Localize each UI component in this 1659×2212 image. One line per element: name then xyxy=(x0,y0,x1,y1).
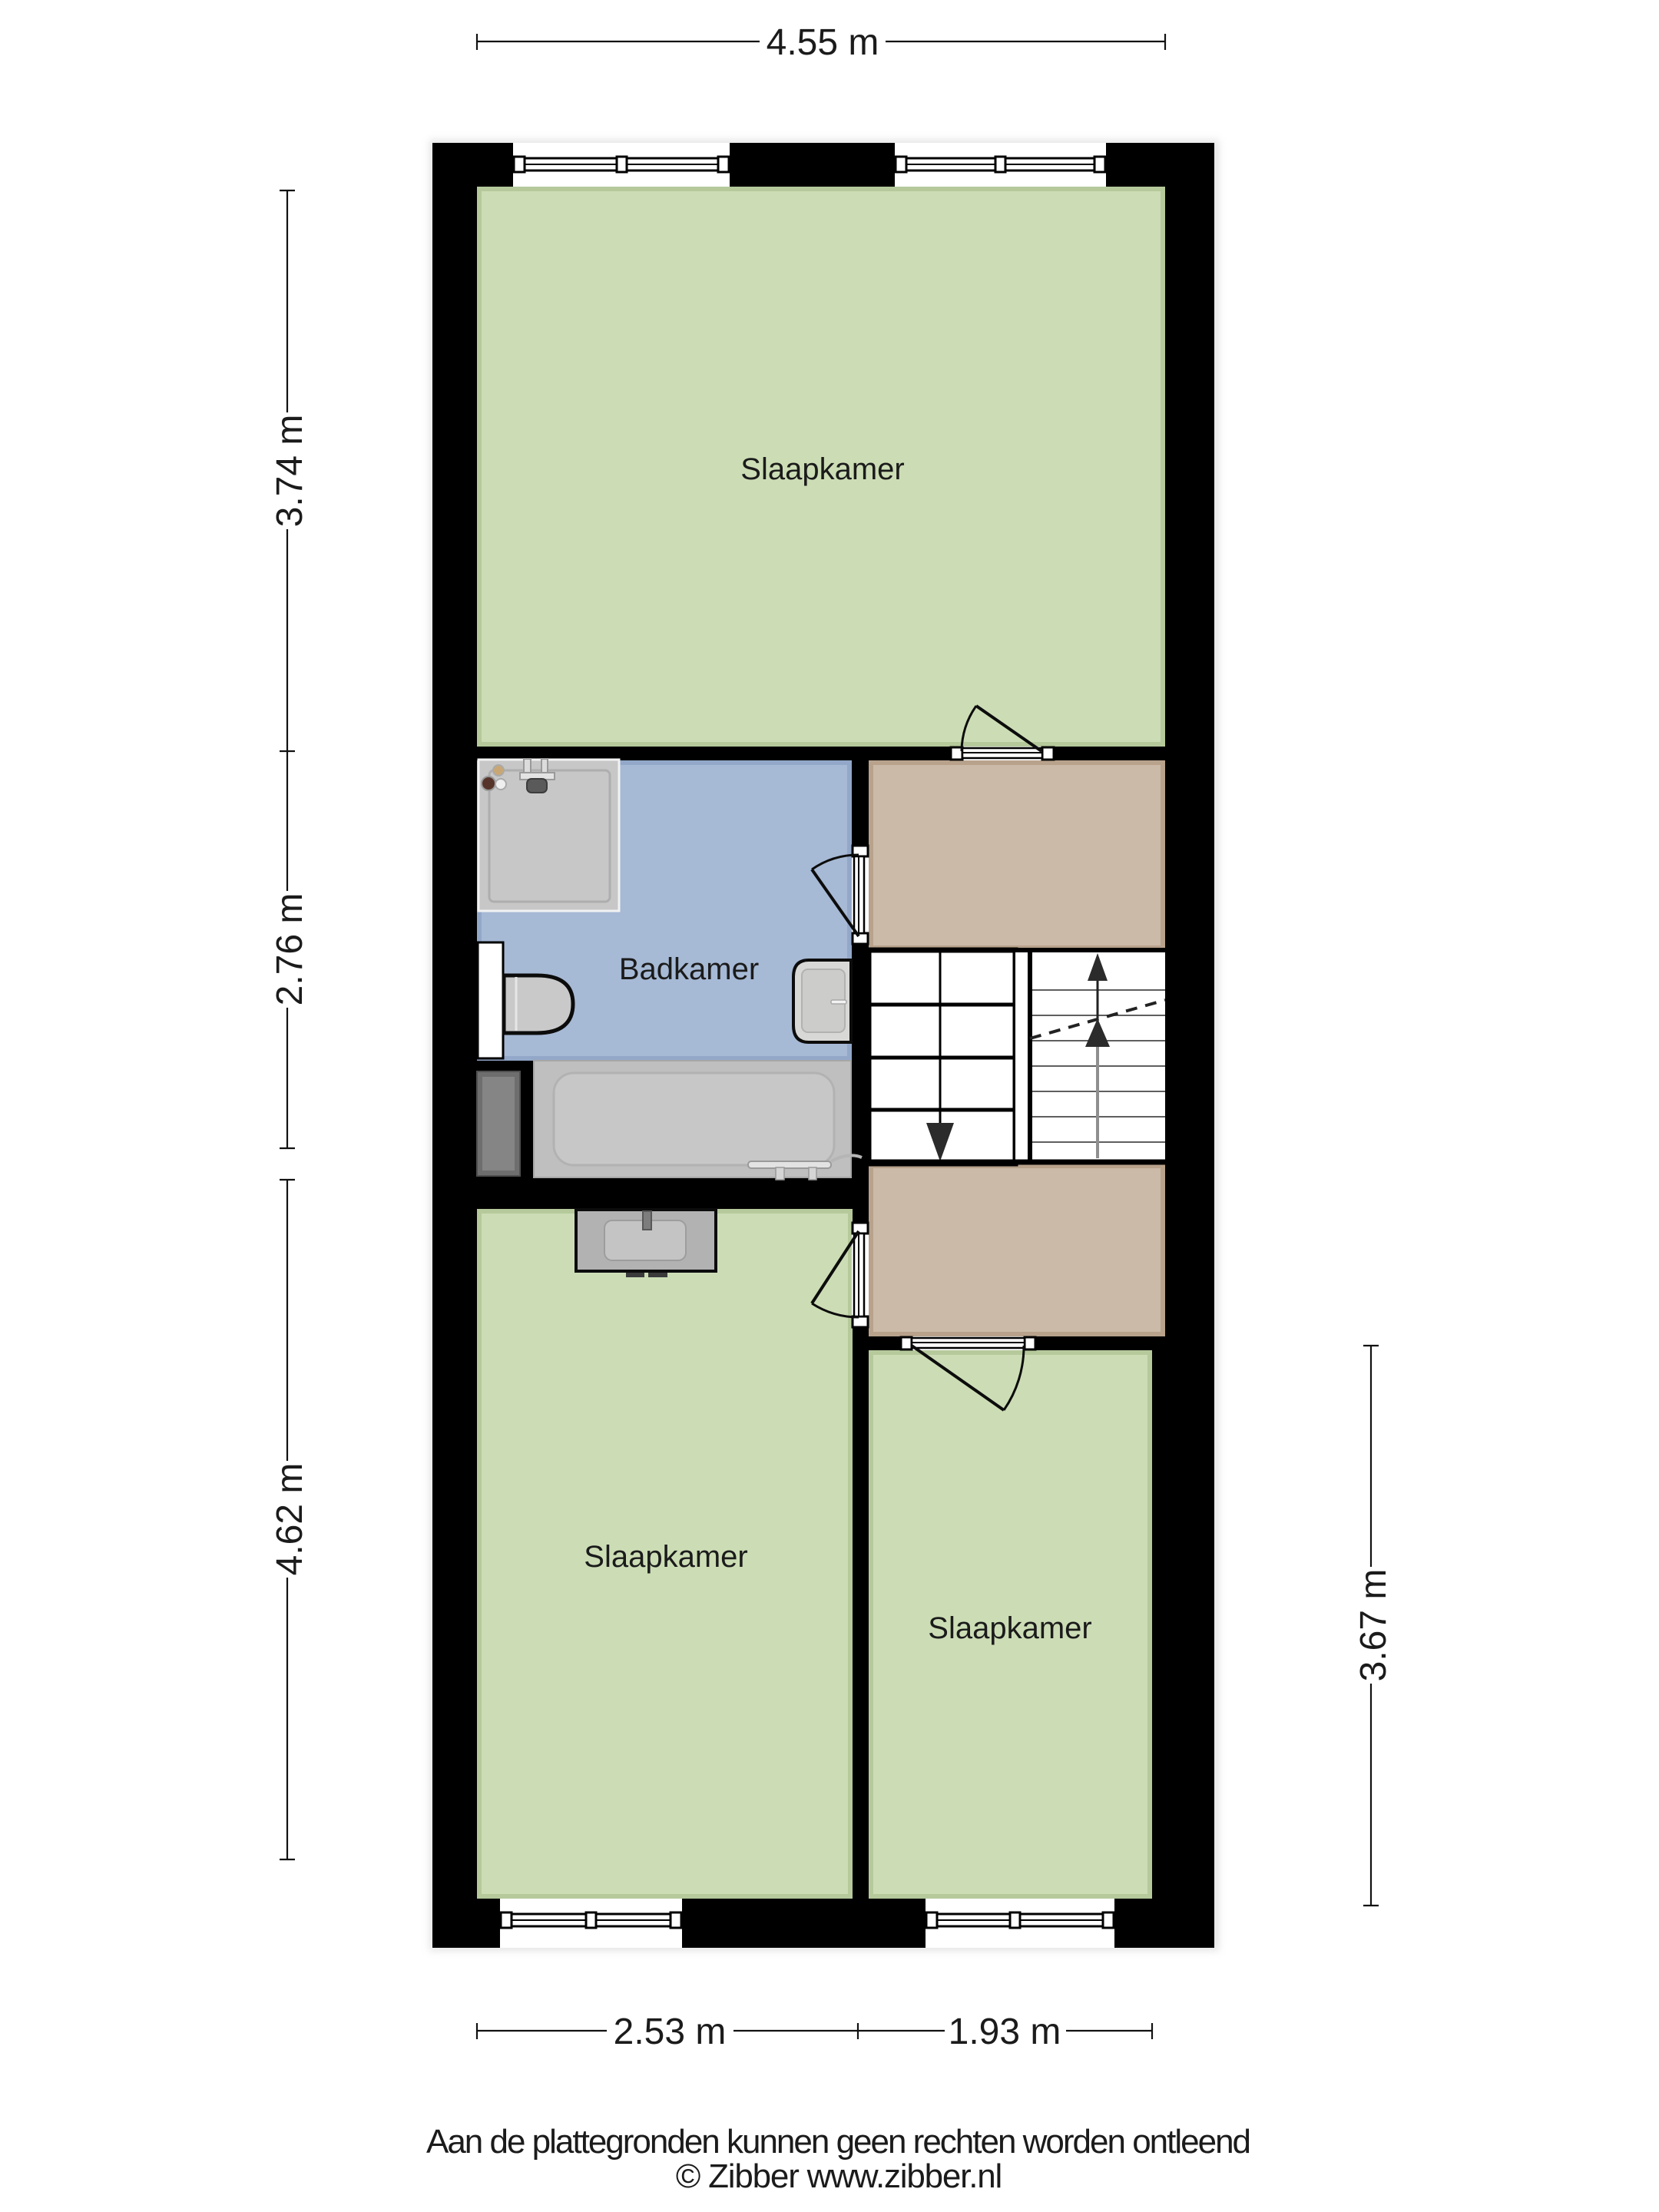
svg-text:Slaapkamer: Slaapkamer xyxy=(740,452,904,486)
svg-text:4.62 m: 4.62 m xyxy=(270,1463,310,1576)
svg-text:Badkamer: Badkamer xyxy=(619,952,759,986)
svg-text:2.76 m: 2.76 m xyxy=(270,893,310,1006)
svg-text:© Zibber www.zibber.nl: © Zibber www.zibber.nl xyxy=(676,2157,1002,2195)
svg-text:1.93 m: 1.93 m xyxy=(949,2012,1061,2052)
svg-text:3.67 m: 3.67 m xyxy=(1353,1569,1394,1682)
svg-text:3.74 m: 3.74 m xyxy=(270,415,310,528)
svg-text:Aan de plattegronden kunnen ge: Aan de plattegronden kunnen geen rechten… xyxy=(426,2123,1250,2161)
svg-text:Slaapkamer: Slaapkamer xyxy=(584,1540,747,1574)
svg-text:2.53 m: 2.53 m xyxy=(614,2012,727,2052)
svg-text:4.55 m: 4.55 m xyxy=(767,22,879,63)
svg-text:Slaapkamer: Slaapkamer xyxy=(928,1611,1091,1645)
